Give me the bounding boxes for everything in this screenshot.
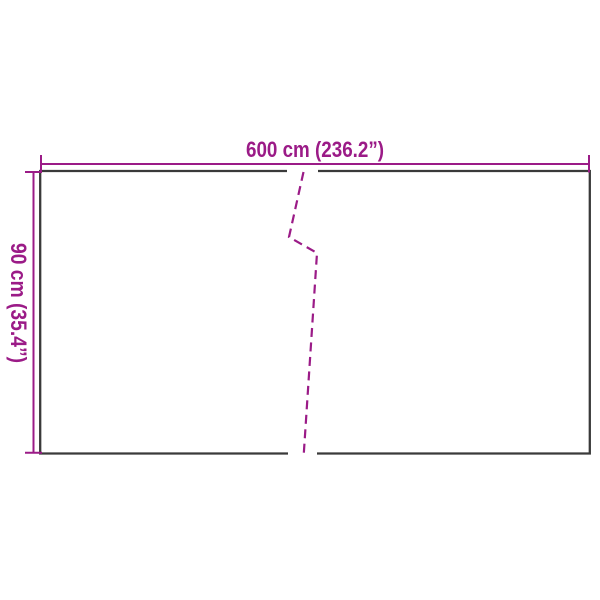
height-dimension-label: 90 cm (35.4”) [6,243,31,363]
diagram-svg: 600 cm (236.2”) 90 cm (35.4”) [0,0,600,600]
dimension-lines-group [25,155,590,458]
panel-outline-group [40,171,590,454]
panel-outline [40,171,590,454]
break-line [289,172,317,458]
width-dimension-label: 600 cm (236.2”) [246,137,384,162]
dimension-diagram: 600 cm (236.2”) 90 cm (35.4”) [0,0,600,600]
